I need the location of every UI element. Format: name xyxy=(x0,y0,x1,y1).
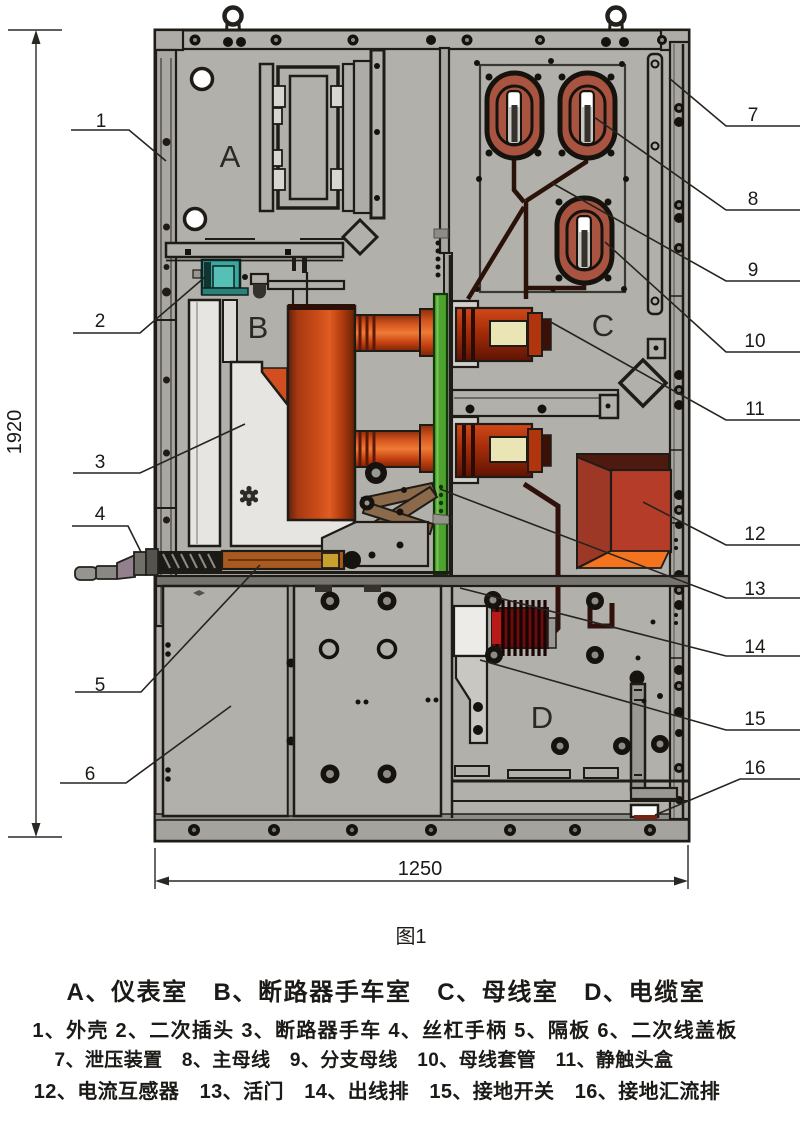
svg-text:1、外壳 2、二次插头 3、断路器手车 4、丝杠手柄 5、隔: 1、外壳 2、二次插头 3、断路器手车 4、丝杠手柄 5、隔板 6、二次线盖板 xyxy=(32,1018,737,1042)
svg-text:A、仪表室 B、断路器手车室 C、母线室 D、电缆室: A、仪表室 B、断路器手车室 C、母线室 D、电缆室 xyxy=(67,978,706,1006)
svg-text:A: A xyxy=(220,139,241,174)
svg-text:2: 2 xyxy=(95,311,106,332)
svg-text:8: 8 xyxy=(748,189,759,210)
svg-text:14: 14 xyxy=(744,637,766,658)
svg-text:7、泄压装置 8、主母线 9、分支母线 10、母线套管 11: 7、泄压装置 8、主母线 9、分支母线 10、母线套管 11、静触头盒 xyxy=(55,1048,675,1071)
svg-text:1920: 1920 xyxy=(4,410,26,455)
svg-text:16: 16 xyxy=(744,758,765,779)
svg-text:15: 15 xyxy=(744,709,765,730)
svg-text:1: 1 xyxy=(96,111,107,132)
svg-text:11: 11 xyxy=(745,399,765,420)
svg-text:10: 10 xyxy=(744,331,765,352)
svg-text:图1: 图1 xyxy=(395,926,426,948)
svg-text:D: D xyxy=(531,700,553,735)
svg-text:B: B xyxy=(248,310,269,345)
svg-text:3: 3 xyxy=(95,452,106,473)
svg-text:7: 7 xyxy=(748,105,759,126)
svg-text:13: 13 xyxy=(744,579,765,600)
svg-text:12、电流互感器 13、活门 14、出线排 15、接地开关: 12、电流互感器 13、活门 14、出线排 15、接地开关 16、接地汇流排 xyxy=(34,1079,720,1103)
svg-text:6: 6 xyxy=(85,764,96,785)
svg-text:1250: 1250 xyxy=(398,858,443,880)
svg-text:9: 9 xyxy=(748,260,759,281)
svg-text:C: C xyxy=(592,308,614,343)
svg-text:4: 4 xyxy=(95,504,106,525)
svg-text:12: 12 xyxy=(744,524,765,545)
svg-text:5: 5 xyxy=(95,675,106,696)
